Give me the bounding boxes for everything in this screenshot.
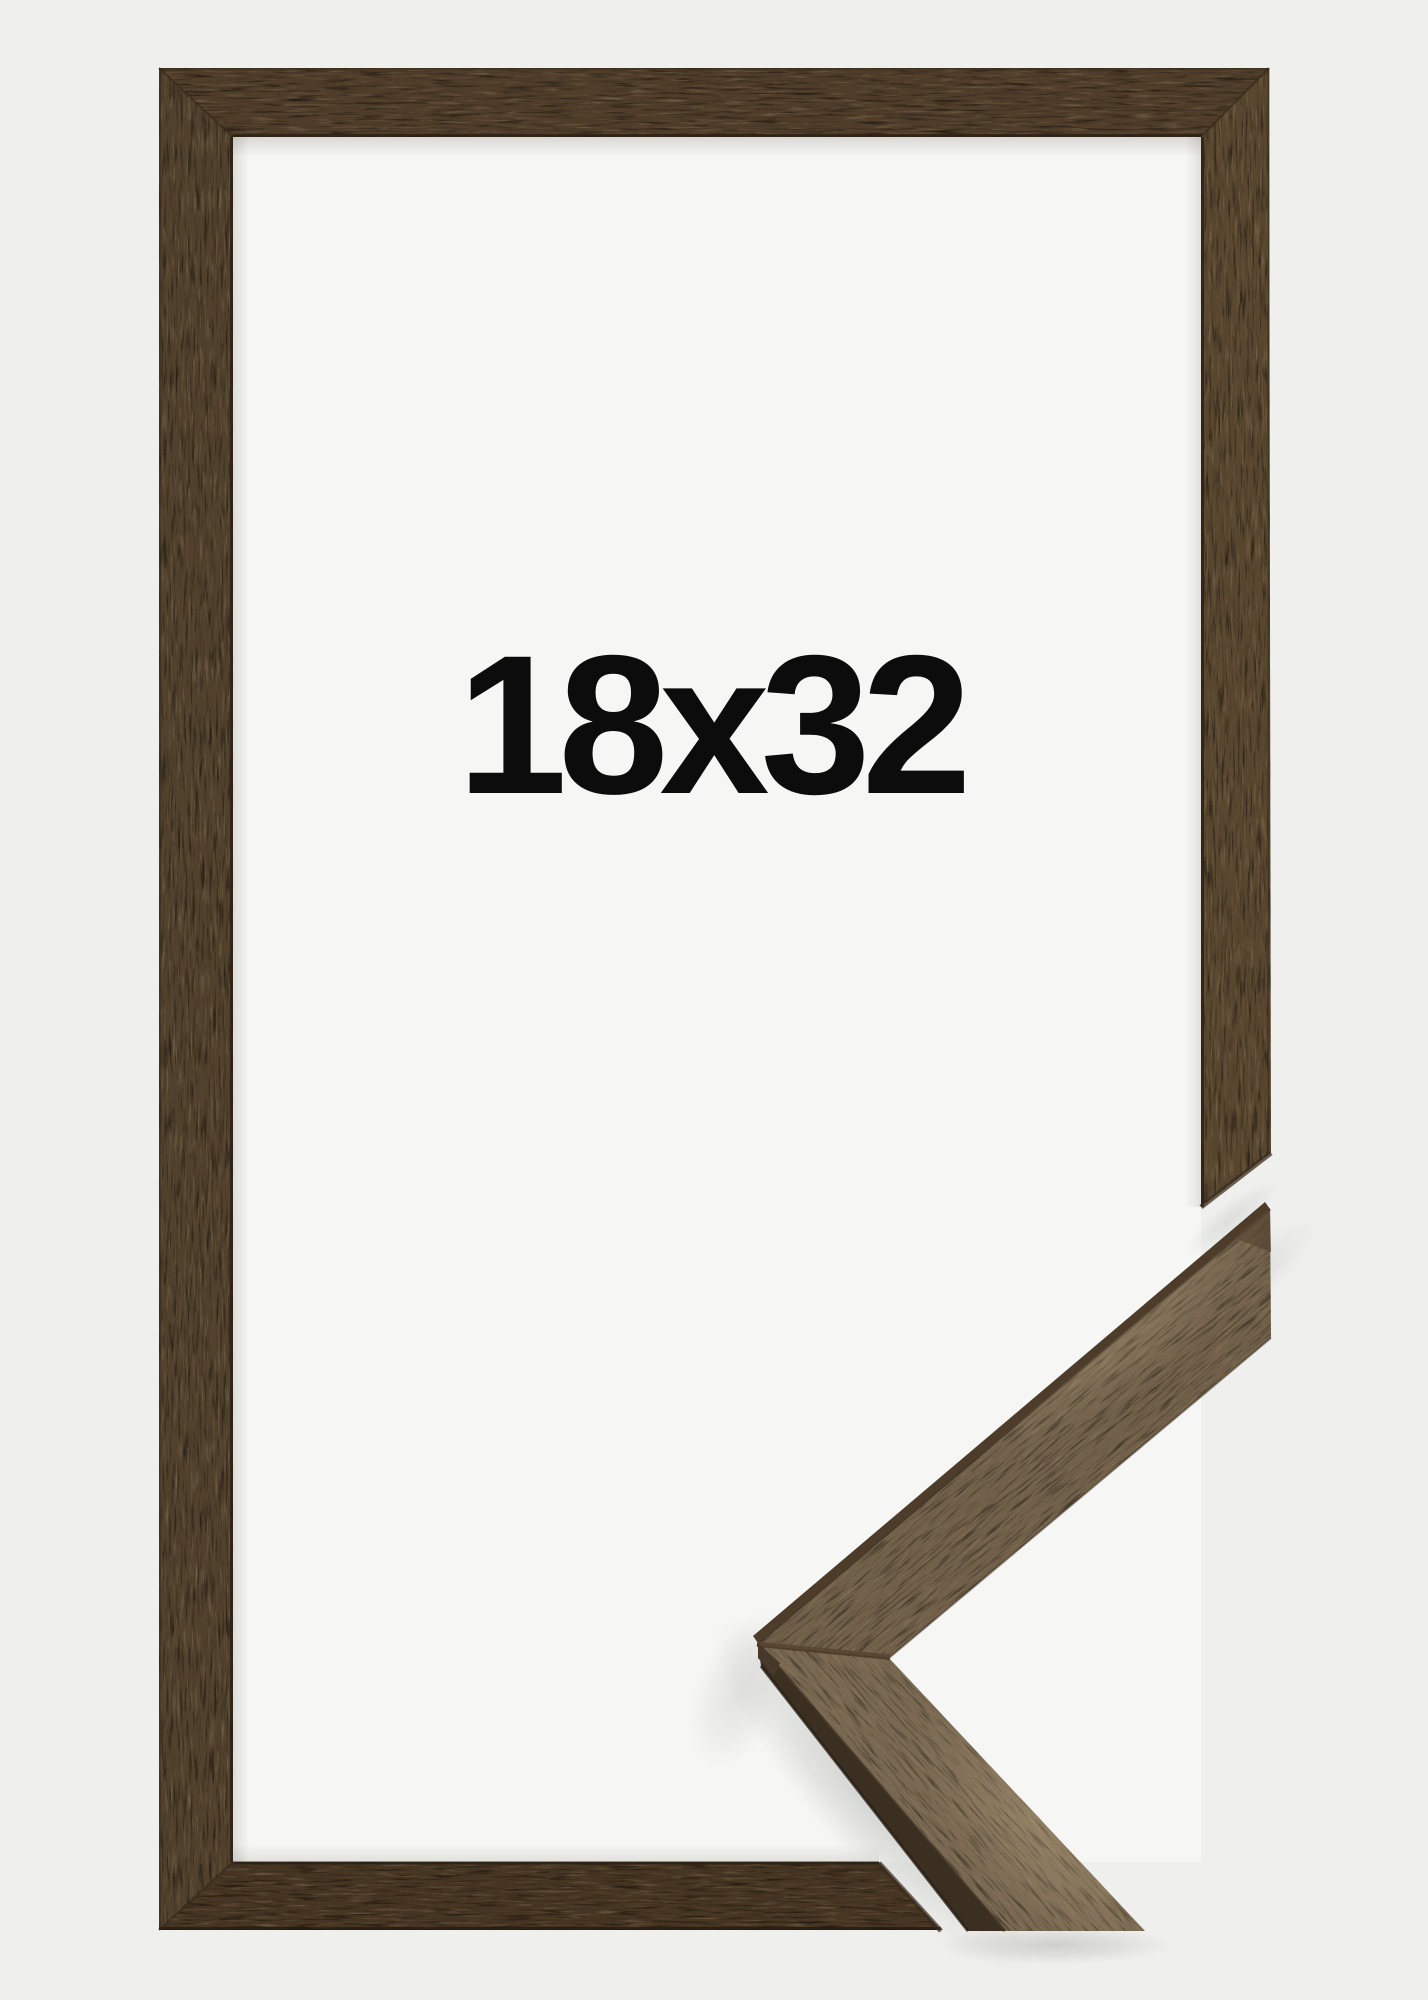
- svg-text:18x32: 18x32: [457, 614, 964, 835]
